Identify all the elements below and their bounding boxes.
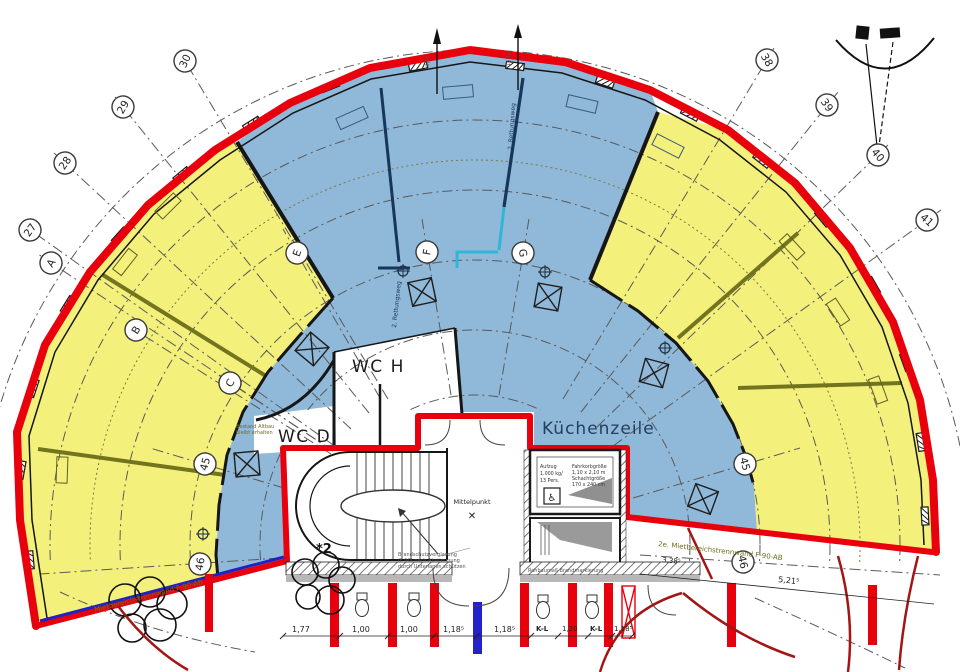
dim-9: 1,18⁵ — [614, 625, 633, 633]
floor-plan-page: 2. Rettungsweg 2. Rettungsweg — [0, 0, 960, 672]
center-point-label: Mittelpunkt — [454, 498, 491, 506]
elevator-persons: 13 Pers. — [540, 478, 559, 484]
elevator: Aufzug 1.000 kg/ 13 Pers. Fahrkorbgröße … — [524, 450, 626, 564]
arrow-dim-1: 13|15 — [425, 56, 431, 70]
dim-8: K-L — [590, 625, 603, 633]
dim-5: 1,18⁵ — [494, 625, 515, 634]
room-label-wc-d: WC D — [278, 427, 331, 447]
grid-bubble-40: 40 — [863, 140, 894, 171]
dim-right: 5,21⁵ — [778, 575, 800, 586]
floor-plan-svg: 2. Rettungsweg 2. Rettungsweg — [0, 0, 960, 672]
center-point-mark: ✕ — [468, 511, 476, 522]
elevator-name: Aufzug — [540, 464, 557, 470]
wheelchair-icon: ♿ — [548, 493, 557, 504]
dim-1: 1,77 — [292, 625, 310, 634]
note-left-2: bleibt erhalten — [236, 430, 273, 436]
room-label-kitchen: Küchenzeile — [542, 419, 655, 439]
grid-arc-bottom-right — [755, 598, 905, 668]
room-label-wc-h: WC H — [352, 357, 405, 377]
elevator-shaft-size: 170 x 240 cm — [572, 482, 605, 488]
grid-bubble-27: 27 — [15, 215, 46, 246]
north-symbol — [836, 25, 934, 146]
grid-bubble-38: 38 — [752, 45, 782, 75]
arrow-dim-2: 15|16 — [506, 52, 512, 66]
grid-bubble-29: 29 — [108, 92, 138, 122]
elevator-car-size: 1,10 x 2,10 m — [572, 470, 606, 476]
dim-2: 1,00 — [352, 625, 370, 634]
tree-note: *2 — [316, 542, 332, 557]
dim-7: 1,20 — [562, 625, 578, 633]
grid-bubble-39: 39 — [812, 90, 843, 121]
dim-6: K-L — [536, 625, 549, 633]
elevator-car-label: Fahrkorbgröße — [572, 464, 607, 470]
elevator-capacity: 1.000 kg/ — [540, 471, 563, 477]
dim-3: 1,00 — [400, 625, 418, 634]
band-note: Rohbaumaß Brandmarkierung — [528, 568, 603, 574]
elevator-shaft-label: Schachtgröße — [572, 476, 605, 482]
svg-text:46: 46 — [194, 556, 208, 572]
grid-bubble-28: 28 — [50, 148, 81, 179]
structure-column-blue — [473, 602, 482, 654]
note-glass-3: durch Unterlagen schützen — [398, 564, 466, 570]
tree-cluster-center — [292, 552, 355, 614]
dim-4: 1,18⁵ — [443, 625, 464, 634]
grid-bubble-30: 30 — [170, 46, 199, 75]
grid-bubble-41: 41 — [911, 204, 942, 235]
